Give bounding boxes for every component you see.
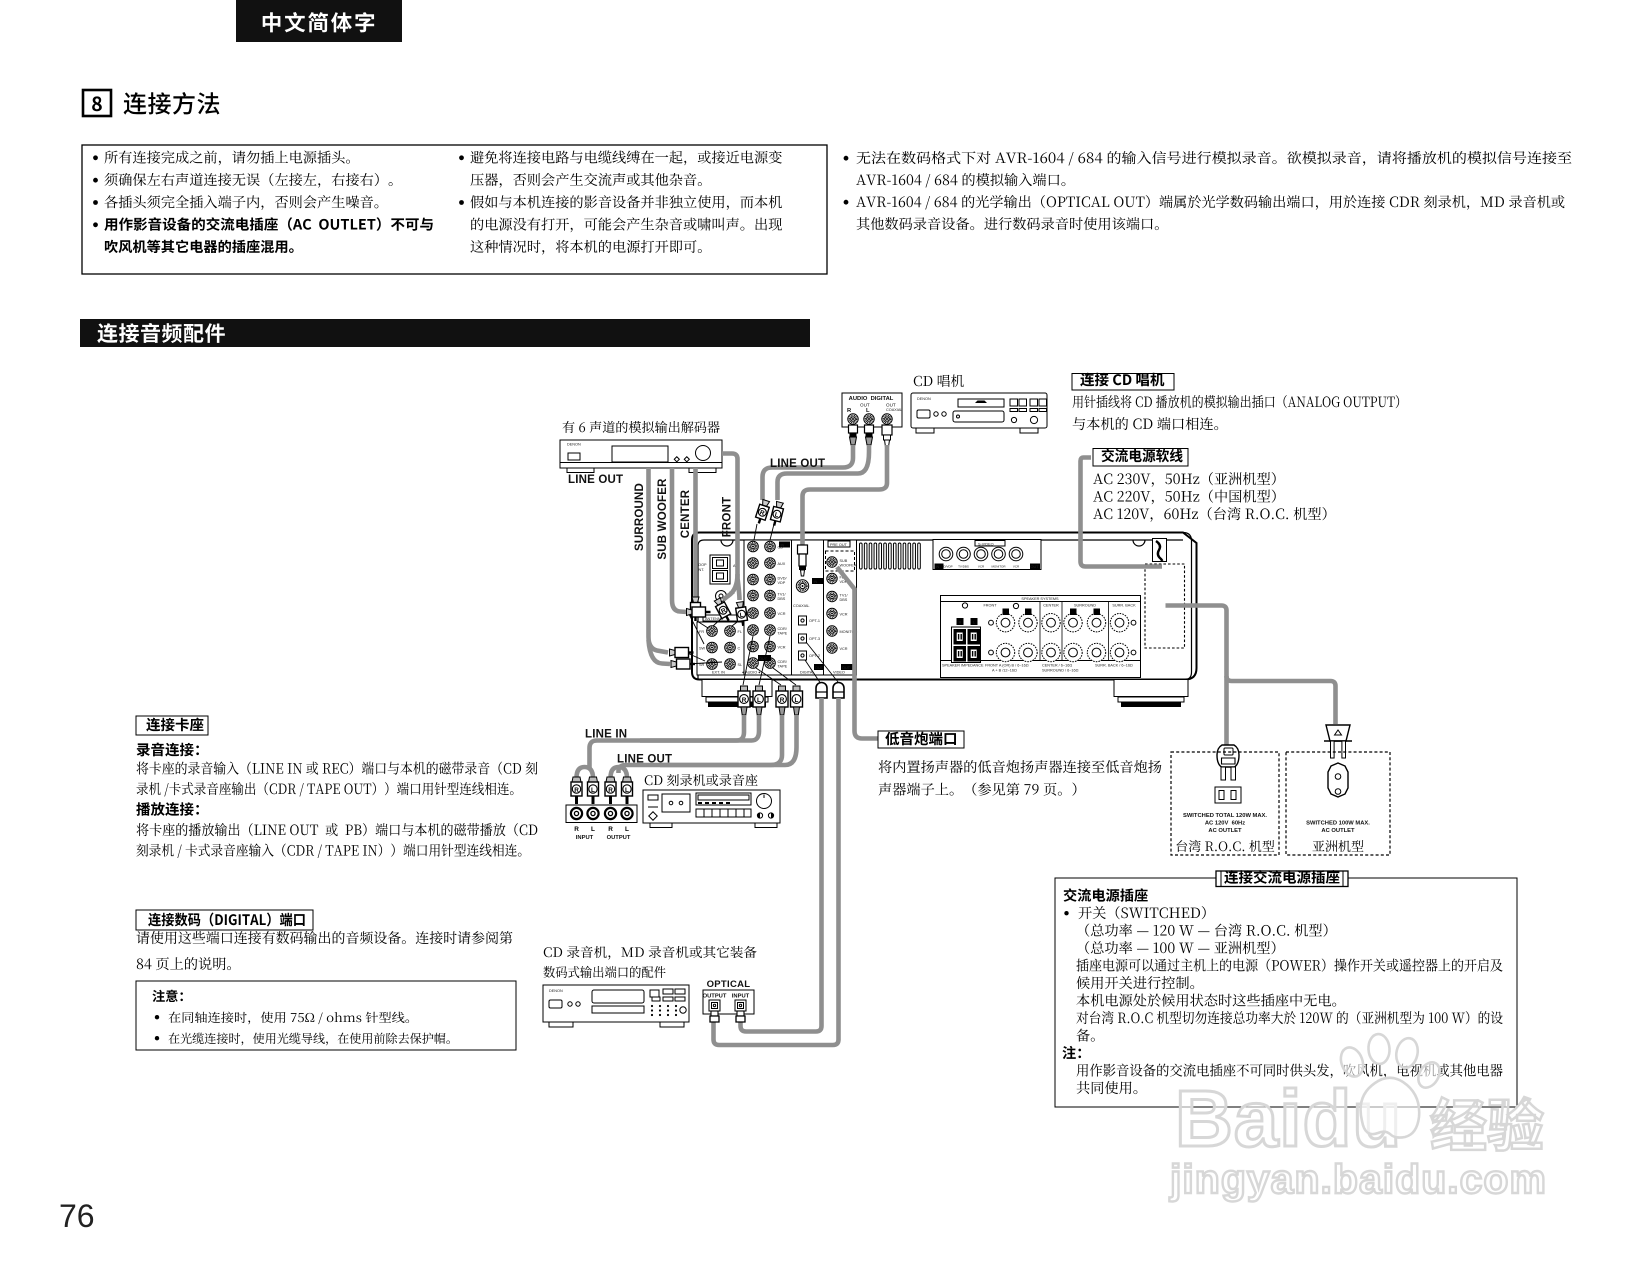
svg-text:L: L: [795, 697, 799, 704]
svg-text:R: R: [742, 697, 747, 704]
svg-text:R: R: [574, 826, 579, 833]
svg-text:FRONT: FRONT: [722, 497, 734, 538]
svg-text:A + B /12~16Ω: A + B /12~16Ω: [992, 669, 1017, 673]
svg-text:DENON: DENON: [549, 989, 563, 993]
svg-text:LINE IN: LINE IN: [585, 729, 627, 741]
svg-text:SURR. BACK / 6~16Ω: SURR. BACK / 6~16Ω: [1095, 664, 1133, 668]
svg-text:L: L: [625, 826, 629, 833]
svg-text:SWITCHED 100W MAX.: SWITCHED 100W MAX.: [1306, 821, 1370, 827]
svg-text:R: R: [608, 826, 613, 833]
svg-text:AUX: AUX: [778, 562, 786, 566]
svg-text:WOOFER: WOOFER: [840, 564, 857, 568]
svg-text:L: L: [866, 408, 870, 414]
svg-text:DBS: DBS: [778, 597, 786, 601]
svg-text:L: L: [757, 697, 761, 704]
svg-text:IN: IN: [936, 565, 940, 569]
svg-text:SW: SW: [699, 647, 706, 651]
svg-text:VCR: VCR: [778, 612, 786, 616]
svg-text:L: L: [973, 621, 975, 625]
svg-text:CDR/: CDR/: [778, 660, 788, 664]
svg-text:AUDIO DIGITAL: AUDIO DIGITAL: [849, 396, 894, 402]
svg-text:OUT: OUT: [815, 666, 824, 670]
svg-text:DENON: DENON: [917, 397, 931, 401]
svg-text:EXT. IN: EXT. IN: [712, 671, 725, 675]
svg-text:OUTPUT: OUTPUT: [703, 994, 727, 1000]
svg-text:FRONT: FRONT: [983, 604, 997, 608]
svg-text:TV1/: TV1/: [778, 593, 787, 597]
svg-text:TAPE: TAPE: [778, 632, 788, 636]
svg-text:VDP: VDP: [778, 581, 786, 585]
svg-text:PRE OUT: PRE OUT: [830, 543, 848, 547]
svg-text:SPEAKER SYSTEMS: SPEAKER SYSTEMS: [1021, 597, 1059, 601]
svg-text:INPUT: INPUT: [732, 994, 750, 1000]
svg-text:COAXIAL: COAXIAL: [793, 604, 809, 608]
svg-text:DBS: DBS: [840, 598, 848, 602]
svg-text:AC OUTLET: AC OUTLET: [1208, 828, 1242, 834]
svg-text:TV/DBS: TV/DBS: [958, 565, 969, 569]
svg-text:FRONT A (OR) B / 6~16Ω: FRONT A (OR) B / 6~16Ω: [985, 664, 1029, 668]
svg-text:L: L: [625, 787, 629, 794]
svg-text:jingyan.baidu.com: jingyan.baidu.com: [1169, 1156, 1547, 1202]
svg-text:VCR: VCR: [778, 646, 786, 650]
svg-text:OUT: OUT: [1031, 565, 1040, 569]
svg-text:R: R: [780, 697, 785, 704]
svg-text:TAPE: TAPE: [778, 665, 788, 669]
svg-text:MONITOR: MONITOR: [991, 565, 1006, 569]
svg-text:SURROUND: SURROUND: [634, 483, 646, 551]
svg-text:COAXIAL: COAXIAL: [886, 408, 902, 412]
svg-text:VCR: VCR: [1013, 565, 1020, 569]
svg-text:L: L: [591, 826, 595, 833]
svg-text:OUTPUT: OUTPUT: [607, 835, 631, 841]
svg-text:76: 76: [59, 1198, 95, 1234]
svg-text:R: R: [959, 621, 962, 625]
svg-text:SL: SL: [738, 663, 743, 667]
svg-text:FL: FL: [738, 630, 742, 634]
svg-text:OPT-1: OPT-1: [809, 619, 820, 623]
svg-text:OUT: OUT: [886, 403, 896, 408]
svg-text:CENTER: CENTER: [1043, 604, 1059, 608]
svg-text:DVD/: DVD/: [778, 577, 788, 581]
svg-text:OUT: OUT: [759, 657, 768, 661]
svg-text:SUB WOOFER: SUB WOOFER: [657, 478, 669, 560]
svg-text:SUB: SUB: [840, 559, 848, 563]
svg-text:FR: FR: [699, 630, 704, 634]
svg-text:AC 120V 60Hz: AC 120V 60Hz: [1205, 821, 1245, 827]
svg-text:LINE OUT: LINE OUT: [568, 474, 623, 486]
svg-text:OUT: OUT: [860, 403, 870, 408]
svg-text:VCR: VCR: [978, 565, 985, 569]
svg-text:R: R: [608, 787, 613, 794]
svg-text:CENTER / 6~16Ω: CENTER / 6~16Ω: [1042, 664, 1072, 668]
svg-text:OPTICAL: OPTICAL: [707, 979, 751, 990]
svg-text:SPEAKER IMPEDANCE: SPEAKER IMPEDANCE: [942, 664, 984, 668]
svg-text:L: L: [591, 787, 595, 794]
svg-text:CENTER: CENTER: [680, 489, 692, 538]
svg-text:● AUDIO ●: ● AUDIO ●: [742, 671, 761, 675]
svg-text:AC OUTLET: AC OUTLET: [1321, 828, 1355, 834]
svg-text:SWITCHED TOTAL 120W MAX.: SWITCHED TOTAL 120W MAX.: [1183, 813, 1267, 819]
svg-text:INPUT: INPUT: [576, 835, 594, 841]
svg-text:VCR: VCR: [840, 647, 848, 651]
svg-text:S-VIDEO: S-VIDEO: [978, 543, 994, 547]
svg-text:IN: IN: [814, 580, 818, 584]
svg-text:OUT: OUT: [842, 666, 851, 670]
svg-text:TV1/: TV1/: [840, 594, 849, 598]
svg-text:C: C: [738, 647, 741, 651]
svg-text:R: R: [574, 787, 579, 794]
svg-text:SURROUND / 6~16Ω: SURROUND / 6~16Ω: [1042, 669, 1079, 673]
svg-text:SURROUND: SURROUND: [1074, 604, 1096, 608]
svg-text:IN: IN: [781, 544, 785, 548]
svg-text:LINE OUT: LINE OUT: [617, 754, 672, 766]
svg-text:SURR. BACK: SURR. BACK: [1112, 604, 1136, 608]
svg-text:DENON: DENON: [567, 443, 581, 447]
svg-text:LINE OUT: LINE OUT: [770, 458, 825, 470]
svg-text:VIDEO: VIDEO: [833, 671, 845, 675]
svg-text:VCR: VCR: [840, 613, 848, 617]
svg-text:CDR/: CDR/: [778, 627, 788, 631]
svg-text:OPT-3: OPT-3: [809, 637, 820, 641]
